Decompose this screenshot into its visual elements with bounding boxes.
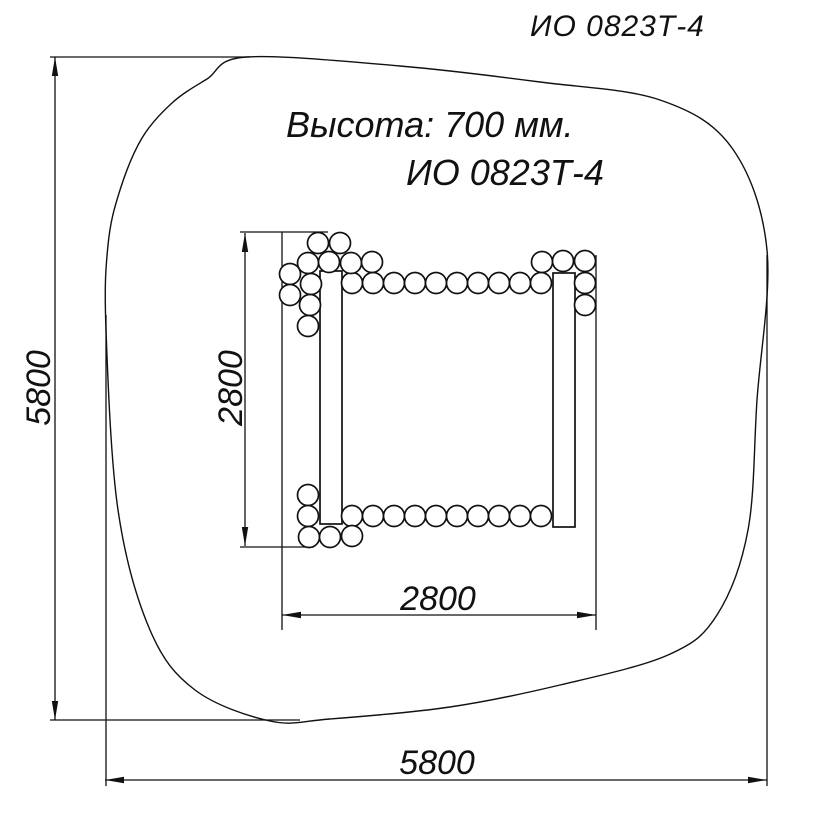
- dimension-value: 2800: [212, 350, 250, 427]
- dimension-zone-height: 5800: [20, 57, 300, 720]
- dimension-value: 2800: [399, 580, 476, 618]
- ball: [341, 253, 362, 274]
- ball: [575, 273, 596, 294]
- dim-arrow: [242, 233, 248, 252]
- dim-arrow: [748, 777, 767, 783]
- ball: [298, 506, 319, 527]
- right-post: [553, 273, 575, 527]
- ball: [447, 506, 468, 527]
- ball: [320, 527, 341, 548]
- ball: [489, 506, 510, 527]
- ball: [489, 273, 510, 294]
- ball: [384, 506, 405, 527]
- ball: [308, 233, 329, 254]
- ball: [342, 273, 363, 294]
- ball: [342, 506, 363, 527]
- ball: [363, 273, 384, 294]
- ball: [468, 506, 489, 527]
- left-post: [320, 271, 342, 524]
- ball: [280, 264, 301, 285]
- ball: [301, 274, 322, 295]
- ball: [575, 295, 596, 316]
- height-annotation: Высота: 700 мм.: [286, 107, 574, 143]
- ball: [531, 506, 552, 527]
- ball: [362, 252, 383, 273]
- ball: [426, 506, 447, 527]
- dim-arrow: [242, 527, 248, 546]
- dim-arrow: [282, 612, 301, 618]
- ball: [447, 273, 468, 294]
- dim-arrow: [52, 701, 58, 720]
- ball: [510, 506, 531, 527]
- model-annotation: ИО 0823Т-4: [406, 155, 604, 191]
- ball: [553, 251, 574, 272]
- ball: [531, 273, 552, 294]
- ball: [330, 233, 351, 254]
- ball: [405, 506, 426, 527]
- ball: [299, 527, 320, 548]
- ball: [300, 295, 321, 316]
- ball: [384, 273, 405, 294]
- ball: [280, 285, 301, 306]
- ball: [405, 273, 426, 294]
- ball: [532, 252, 553, 273]
- ball: [363, 506, 384, 527]
- ball: [342, 526, 363, 547]
- dimension-value: 5800: [20, 350, 58, 426]
- drawing-sheet: 5800580028002800 ИО 0823Т-4 Высота: 700 …: [0, 0, 832, 821]
- dim-arrow: [52, 57, 58, 76]
- ball: [319, 252, 340, 273]
- dim-arrow: [577, 612, 596, 618]
- ball: [575, 251, 596, 272]
- ball: [468, 273, 489, 294]
- ball: [510, 273, 531, 294]
- ball: [298, 485, 319, 506]
- sheet-title: ИО 0823Т-4: [530, 12, 705, 42]
- ball: [426, 273, 447, 294]
- ball: [298, 316, 319, 337]
- dimension-value: 5800: [399, 744, 475, 782]
- dim-arrow: [105, 777, 124, 783]
